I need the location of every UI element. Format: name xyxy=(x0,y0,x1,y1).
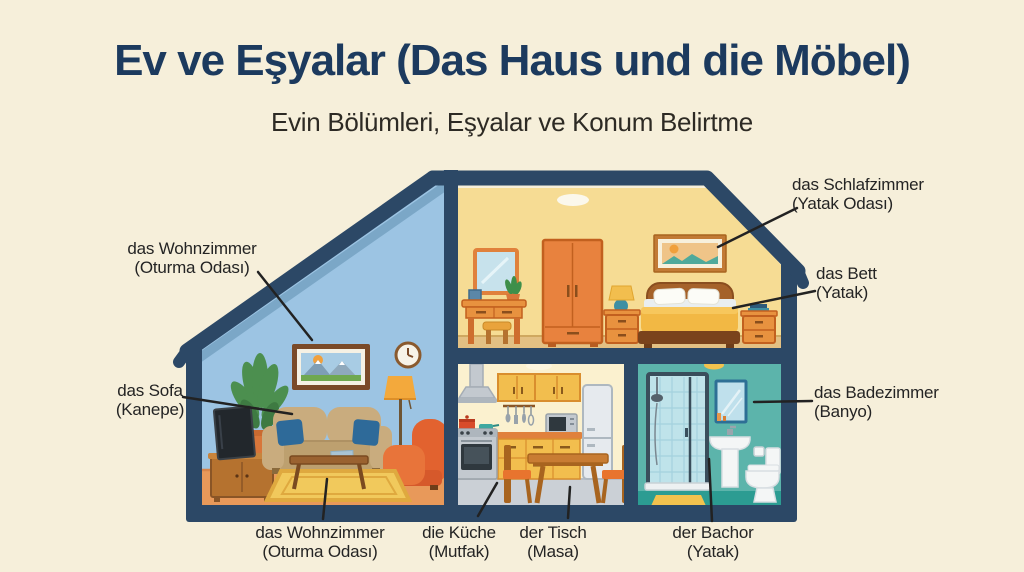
bedroom-ceiling-light xyxy=(557,194,589,206)
pillow xyxy=(654,288,686,305)
floor-divider xyxy=(444,348,797,364)
label-wohnzimmer-top: das Wohnzimmer (Oturma Odası) xyxy=(127,240,256,277)
sofa-pillow-right xyxy=(352,419,380,446)
term-text: das Bett xyxy=(816,265,877,284)
wall-picture-bedroom xyxy=(654,235,726,272)
pillow xyxy=(688,288,720,304)
wardrobe xyxy=(543,240,602,347)
translation-text: (Kanepe) xyxy=(116,401,184,420)
term-text: die Küche xyxy=(422,524,496,543)
term-text: das Wohnzimmer xyxy=(127,240,256,259)
left-eave xyxy=(179,351,187,362)
term-text: der Tisch xyxy=(519,524,586,543)
upper-cabinets xyxy=(498,374,580,401)
wall-clock xyxy=(396,343,420,367)
left-wall xyxy=(186,348,202,508)
toilet-paper xyxy=(754,447,764,456)
label-wohnzimmer-bottom: das Wohnzimmer (Oturma Odası) xyxy=(255,524,384,561)
translation-text: (Yatak) xyxy=(816,284,877,303)
shower-tray xyxy=(645,483,710,490)
label-badezimmer: das Badezimmer (Banyo) xyxy=(814,384,939,421)
label-kueche: die Küche (Mutfak) xyxy=(422,524,496,561)
translation-text: (Yatak) xyxy=(672,543,753,562)
rug xyxy=(267,471,409,500)
term-text: das Badezimmer xyxy=(814,384,939,403)
bathroom-mirror xyxy=(716,381,746,422)
microwave xyxy=(546,414,577,434)
translation-text: (Oturma Odası) xyxy=(127,259,256,278)
poster: Ev ve Eşyalar (Das Haus und die Möbel) E… xyxy=(0,0,1024,572)
center-wall xyxy=(444,170,458,508)
label-sofa: das Sofa (Kanepe) xyxy=(116,382,184,419)
label-tisch: der Tisch (Masa) xyxy=(519,524,586,561)
sofa-pillow-left xyxy=(276,419,304,447)
shower-head xyxy=(651,394,663,402)
translation-text: (Yatak Odası) xyxy=(792,195,924,214)
translation-text: (Masa) xyxy=(519,543,586,562)
label-schlafzimmer: das Schlafzimmer (Yatak Odası) xyxy=(792,176,924,213)
shower xyxy=(645,374,710,490)
translation-text: (Banyo) xyxy=(814,403,939,422)
pointer-badezimmer xyxy=(754,401,812,402)
term-text: der Bachor xyxy=(672,524,753,543)
kitchen-bathroom-wall xyxy=(624,364,638,508)
house-base xyxy=(186,505,797,522)
translation-text: (Oturma Odası) xyxy=(255,543,384,562)
bath-mat xyxy=(651,495,706,506)
wall-picture-living xyxy=(292,344,370,390)
right-eave xyxy=(798,271,803,283)
term-text: das Sofa xyxy=(116,382,184,401)
label-bachor: der Bachor (Yatak) xyxy=(672,524,753,561)
right-wall xyxy=(781,264,797,508)
label-bett: das Bett (Yatak) xyxy=(816,265,877,302)
bed xyxy=(638,283,740,349)
translation-text: (Mutfak) xyxy=(422,543,496,562)
tv xyxy=(214,406,255,459)
term-text: das Schlafzimmer xyxy=(792,176,924,195)
term-text: das Wohnzimmer xyxy=(255,524,384,543)
